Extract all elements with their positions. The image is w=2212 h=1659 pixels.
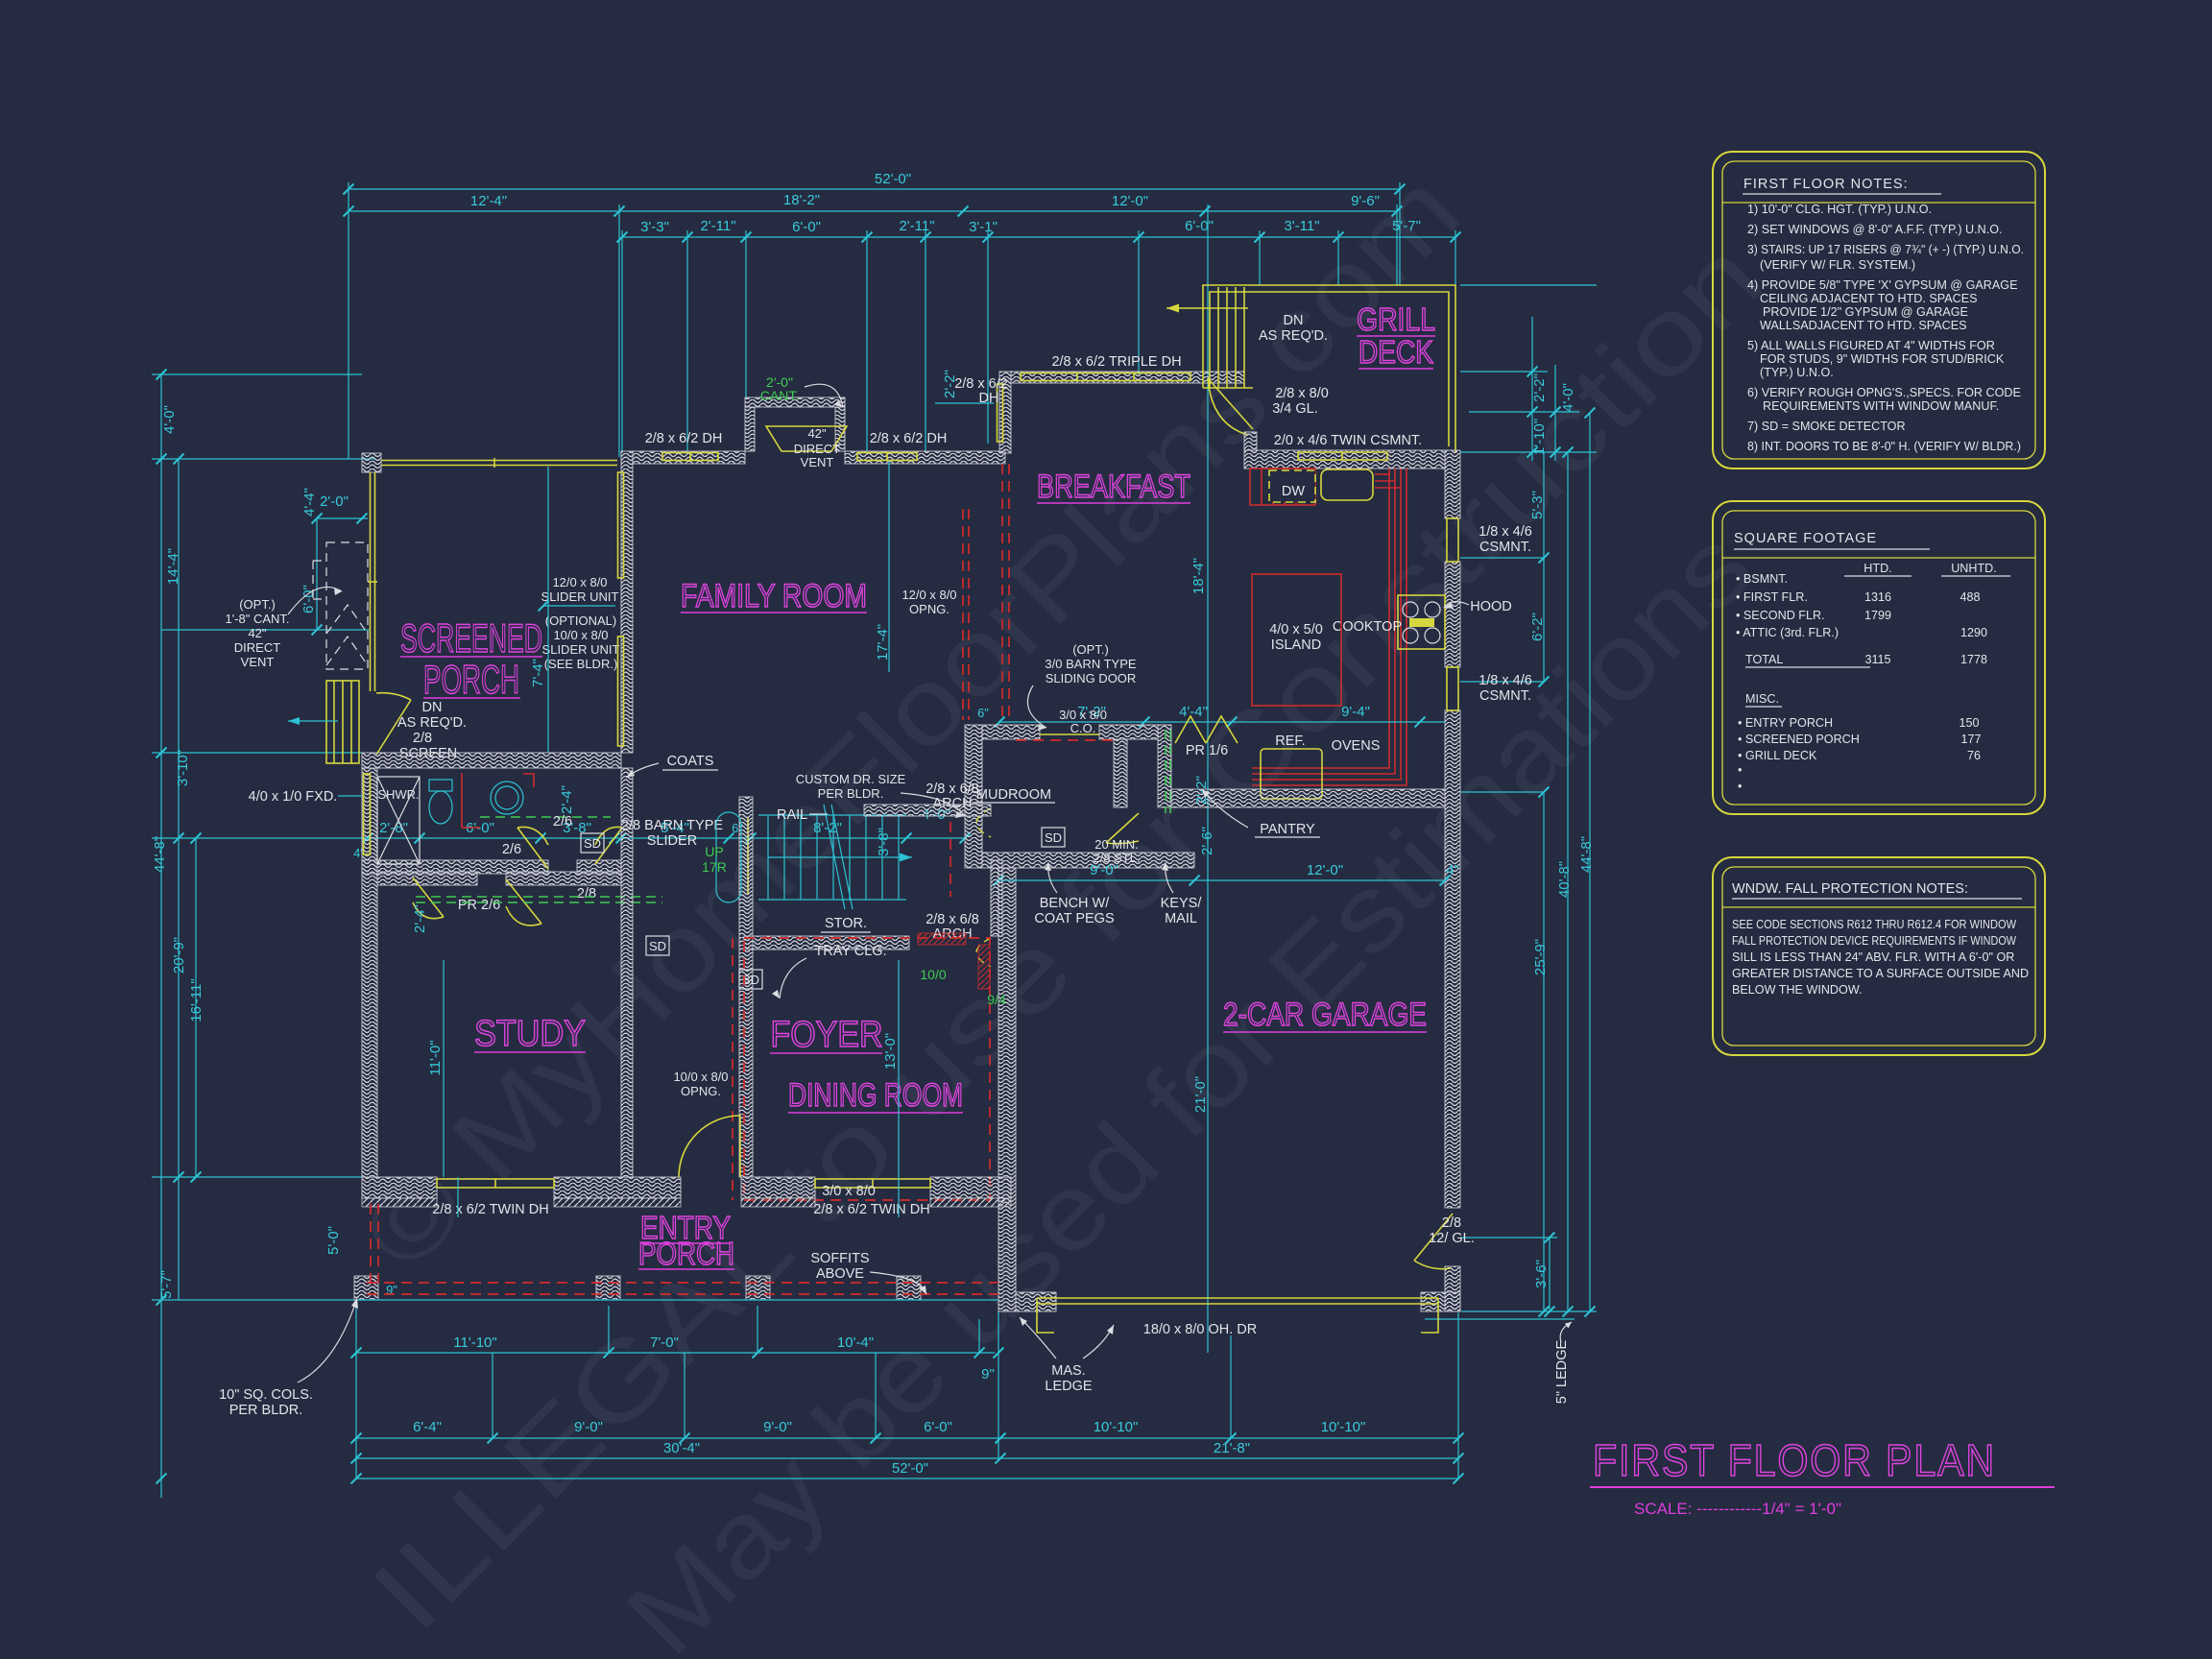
svg-text:2'-8": 2'-8" [379, 820, 408, 836]
svg-text:1/8 x 4/6: 1/8 x 4/6 [1479, 524, 1532, 540]
svg-text:VENT: VENT [801, 455, 834, 469]
svg-text:UP: UP [705, 844, 723, 859]
svg-text:• BSMNT.: • BSMNT. [1736, 572, 1788, 586]
svg-text:2/8 x 6/2: 2/8 x 6/2 [954, 376, 1008, 392]
svg-text:44'-8": 44'-8" [1578, 836, 1595, 873]
svg-text:25'-9": 25'-9" [1532, 939, 1549, 975]
svg-text:DECK: DECK [1358, 334, 1433, 370]
svg-text:PR 1/6: PR 1/6 [1186, 743, 1228, 758]
svg-text:DIRECT: DIRECT [234, 640, 280, 655]
svg-text:3/0 BARN TYPE: 3/0 BARN TYPE [1045, 657, 1136, 671]
svg-text:6": 6" [977, 706, 989, 720]
svg-text:FAMILY ROOM: FAMILY ROOM [681, 578, 867, 614]
svg-text:MUDROOM: MUDROOM [976, 787, 1051, 803]
svg-text:DIRECT: DIRECT [794, 442, 840, 456]
svg-text:• FIRST FLR.: • FIRST FLR. [1736, 590, 1808, 604]
svg-text:SLIDER: SLIDER [647, 833, 697, 849]
svg-text:FALL PROTECTION DEVICE REQUIRE: FALL PROTECTION DEVICE REQUIREMENTS IF W… [1732, 934, 2016, 948]
svg-text:13'-0": 13'-0" [882, 1033, 899, 1070]
svg-text:FOYER: FOYER [771, 1015, 883, 1055]
svg-text:5) ALL WALLS FIGURED AT 4" WID: 5) ALL WALLS FIGURED AT 4" WIDTHS FOR [1747, 339, 1995, 352]
svg-text:CUSTOM DR. SIZE: CUSTOM DR. SIZE [796, 772, 906, 786]
svg-text:16'-11": 16'-11" [188, 978, 204, 1022]
svg-text:2/6: 2/6 [553, 814, 572, 829]
svg-text:4/0 x 5/0: 4/0 x 5/0 [1269, 622, 1323, 637]
svg-text:REF.: REF. [1275, 733, 1305, 749]
svg-text:SLIDER UNIT: SLIDER UNIT [541, 589, 619, 604]
svg-text:11'-10": 11'-10" [453, 1334, 496, 1351]
svg-text:COAT PEGS: COAT PEGS [1034, 911, 1114, 926]
svg-text:SHWR.: SHWR. [377, 787, 419, 802]
svg-text:BENCH W/: BENCH W/ [1040, 896, 1110, 911]
svg-text:AS REQ'D.: AS REQ'D. [397, 715, 467, 731]
svg-text:8) INT. DOORS TO BE 8'-0" H. (: 8) INT. DOORS TO BE 8'-0" H. (VERIFY W/ … [1747, 440, 2021, 453]
svg-text:12'-0": 12'-0" [1307, 862, 1343, 878]
svg-text:2/8 x 6/8: 2/8 x 6/8 [926, 912, 979, 927]
svg-text:• GRILL DECK: • GRILL DECK [1738, 749, 1817, 762]
svg-text:4'-0": 4'-0" [161, 405, 178, 434]
svg-text:PROVIDE 1/2" GYPSUM @ GARAGE: PROVIDE 1/2" GYPSUM @ GARAGE [1763, 305, 1968, 319]
svg-text:SEE CODE SECTIONS R612 THRU R6: SEE CODE SECTIONS R612 THRU R612.4 FOR W… [1732, 918, 2016, 931]
svg-text:1/8 x 4/6: 1/8 x 4/6 [1479, 673, 1532, 688]
svg-text:4'-0": 4'-0" [1560, 383, 1576, 412]
svg-text:11'-0": 11'-0" [427, 1040, 444, 1075]
svg-text:6'-0": 6'-0" [1185, 218, 1214, 234]
svg-text:PANTRY: PANTRY [1260, 822, 1315, 837]
svg-text:SD: SD [584, 836, 601, 851]
svg-text:SD: SD [649, 939, 666, 953]
svg-text:488: 488 [1960, 590, 1980, 604]
svg-text:1'-10": 1'-10" [1531, 419, 1548, 455]
svg-text:9": 9" [981, 1366, 995, 1382]
svg-text:4": 4" [1446, 862, 1459, 878]
svg-text:BELOW THE WINDOW.: BELOW THE WINDOW. [1732, 983, 1863, 997]
svg-text:4) PROVIDE 5/8" TYPE 'X' GYPSU: 4) PROVIDE 5/8" TYPE 'X' GYPSUM @ GARAGE [1747, 278, 2017, 292]
svg-text:2/0 x 4/6 TWIN CSMNT.: 2/0 x 4/6 TWIN CSMNT. [1274, 433, 1422, 448]
svg-text:• SCREENED PORCH: • SCREENED PORCH [1738, 733, 1860, 746]
svg-text:12'-0": 12'-0" [1112, 193, 1148, 209]
svg-text:9'-6": 9'-6" [1351, 193, 1380, 209]
svg-text:•: • [1738, 780, 1742, 793]
svg-text:FOR STUDS, 9" WIDTHS FOR STUD/: FOR STUDS, 9" WIDTHS FOR STUD/BRICK [1760, 352, 2005, 366]
svg-text:DINING ROOM: DINING ROOM [788, 1077, 963, 1114]
svg-text:3/0 x 8/0: 3/0 x 8/0 [822, 1184, 876, 1199]
svg-text:5'-3": 5'-3" [1529, 491, 1546, 519]
svg-text:• ATTIC (3rd. FLR.): • ATTIC (3rd. FLR.) [1736, 626, 1839, 639]
svg-text:PORCH: PORCH [638, 1236, 734, 1271]
svg-text:2/8 BARN TYPE: 2/8 BARN TYPE [621, 818, 723, 833]
svg-text:1290: 1290 [1960, 626, 1987, 639]
svg-text:7'-4": 7'-4" [530, 659, 546, 687]
svg-text:MISC.: MISC. [1745, 692, 1779, 706]
svg-text:(VERIFY W/ FLR. SYSTEM.): (VERIFY W/ FLR. SYSTEM.) [1760, 258, 1915, 272]
svg-text:12/0 x 8/0: 12/0 x 8/0 [552, 575, 607, 589]
svg-text:SILL IS LESS THAN 24" ABV. FLR: SILL IS LESS THAN 24" ABV. FLR. WITH A 6… [1732, 950, 2014, 964]
svg-text:OPNG.: OPNG. [909, 602, 950, 616]
svg-text:ISLAND: ISLAND [1271, 637, 1321, 653]
svg-text:SQUARE FOOTAGE: SQUARE FOOTAGE [1734, 531, 1877, 546]
svg-text:KEYS/: KEYS/ [1161, 896, 1203, 911]
svg-text:ABOVE: ABOVE [816, 1266, 864, 1282]
svg-text:2'-11": 2'-11" [700, 218, 735, 234]
svg-text:2-CAR GARAGE: 2-CAR GARAGE [1223, 997, 1427, 1033]
svg-text:10/0 x 8/0: 10/0 x 8/0 [553, 628, 608, 642]
svg-text:9'-4": 9'-4" [1341, 704, 1370, 720]
svg-text:RAIL: RAIL [777, 807, 807, 823]
svg-text:2/8 x 6/2 TWIN DH: 2/8 x 6/2 TWIN DH [432, 1202, 548, 1217]
svg-text:CANT.: CANT. [760, 388, 799, 403]
svg-text:10'-10": 10'-10" [1094, 1419, 1139, 1435]
svg-text:7'-0": 7'-0" [650, 1334, 679, 1351]
svg-text:CEILING ADJACENT TO HTD. SPACE: CEILING ADJACENT TO HTD. SPACES [1760, 292, 1978, 305]
svg-text:21'-8": 21'-8" [1214, 1440, 1250, 1456]
svg-text:3'-6": 3'-6" [1533, 1260, 1550, 1288]
svg-text:9'-0": 9'-0" [763, 1419, 792, 1435]
svg-text:17R: 17R [702, 859, 727, 875]
svg-text:1799: 1799 [1864, 609, 1891, 622]
svg-text:• SECOND FLR.: • SECOND FLR. [1736, 609, 1825, 622]
svg-text:4/0 x 1/0 FXD.: 4/0 x 1/0 FXD. [249, 789, 338, 805]
svg-text:•: • [1738, 763, 1742, 777]
svg-text:REQUIREMENTS WITH WINDOW MANUF: REQUIREMENTS WITH WINDOW MANUF. [1763, 399, 1999, 413]
svg-text:CSMNT.: CSMNT. [1479, 688, 1531, 704]
svg-text:9'-0": 9'-0" [1090, 862, 1118, 878]
svg-text:20 MIN.: 20 MIN. [1094, 837, 1139, 852]
svg-text:(SEE BLDR.): (SEE BLDR.) [544, 657, 618, 671]
svg-text:3) STAIRS: UP 17 RISERS @ 7¾": 3) STAIRS: UP 17 RISERS @ 7¾" (+ -) (TYP… [1747, 243, 2024, 256]
svg-text:HOOD: HOOD [1470, 599, 1512, 614]
svg-text:STUDY: STUDY [474, 1014, 586, 1054]
svg-text:PORCH: PORCH [423, 657, 519, 702]
svg-text:30'-4": 30'-4" [663, 1440, 700, 1456]
svg-text:PER BLDR.: PER BLDR. [229, 1403, 303, 1418]
svg-text:1778: 1778 [1960, 653, 1987, 666]
svg-text:14'-4": 14'-4" [165, 548, 181, 585]
svg-text:2'-2": 2'-2" [1193, 776, 1210, 805]
svg-text:40'-8": 40'-8" [1556, 861, 1573, 898]
svg-text:SLIDER UNIT: SLIDER UNIT [542, 642, 620, 657]
svg-text:GRILL: GRILL [1357, 301, 1435, 337]
svg-text:PER BLDR.: PER BLDR. [818, 786, 884, 801]
svg-text:TOTAL: TOTAL [1745, 653, 1783, 666]
svg-text:4'-4": 4'-4" [301, 488, 318, 517]
svg-text:2'-11": 2'-11" [899, 218, 934, 234]
svg-text:TRAY CLG.: TRAY CLG. [814, 944, 886, 959]
svg-text:MAS.: MAS. [1051, 1363, 1085, 1379]
svg-text:STOR.: STOR. [825, 916, 867, 931]
svg-text:2) SET WINDOWS @ 8'-0" A.F.F.: 2) SET WINDOWS @ 8'-0" A.F.F. (TYP.) U.N… [1747, 223, 2003, 236]
svg-text:2/8: 2/8 [577, 886, 596, 902]
svg-text:5'-0": 5'-0" [325, 1226, 342, 1255]
svg-text:2/8 x 6/2 DH: 2/8 x 6/2 DH [870, 431, 948, 446]
svg-text:(OPT.): (OPT.) [239, 597, 276, 612]
svg-text:2/8 x 6/8: 2/8 x 6/8 [926, 781, 979, 797]
svg-text:9'-0": 9'-0" [574, 1419, 603, 1435]
svg-text:LEDGE: LEDGE [1045, 1379, 1092, 1394]
svg-text:SLIDING DOOR: SLIDING DOOR [1046, 671, 1137, 685]
svg-text:17'-4": 17'-4" [875, 624, 891, 661]
svg-text:6'-0": 6'-0" [792, 219, 821, 235]
svg-text:AS REQ'D.: AS REQ'D. [1259, 328, 1328, 344]
svg-text:42": 42" [807, 426, 826, 441]
svg-text:1316: 1316 [1864, 590, 1891, 604]
svg-text:DN: DN [1284, 313, 1304, 328]
svg-text:10" SQ. COLS.: 10" SQ. COLS. [219, 1387, 313, 1403]
svg-text:1'-8" CANT.: 1'-8" CANT. [225, 612, 289, 626]
svg-text:150: 150 [1959, 716, 1979, 730]
svg-text:20'-9": 20'-9" [171, 937, 187, 974]
svg-text:52'-0": 52'-0" [892, 1460, 928, 1477]
svg-text:10/0: 10/0 [920, 967, 946, 982]
svg-text:12/0 x 8/0: 12/0 x 8/0 [902, 588, 956, 602]
svg-text:3'-11": 3'-11" [1284, 218, 1319, 234]
svg-text:5" LEDGE: 5" LEDGE [1554, 1339, 1570, 1404]
svg-text:21'-0": 21'-0" [1192, 1076, 1209, 1113]
svg-text:6'-2": 6'-2" [1529, 613, 1546, 641]
svg-text:3/4 GL.: 3/4 GL. [1272, 401, 1318, 417]
svg-text:2/8 x 6/2 TRIPLE DH: 2/8 x 6/2 TRIPLE DH [1051, 354, 1181, 370]
svg-text:OVENS: OVENS [1332, 738, 1381, 754]
svg-text:177: 177 [1960, 733, 1981, 746]
svg-text:10'-10": 10'-10" [1321, 1419, 1366, 1435]
svg-text:2/8 x 6/2 DH: 2/8 x 6/2 DH [645, 431, 723, 446]
svg-text:52'-0": 52'-0" [875, 171, 911, 187]
svg-text:(OPTIONAL): (OPTIONAL) [545, 613, 616, 628]
svg-text:3'-1": 3'-1" [969, 219, 998, 235]
svg-text:5'-7": 5'-7" [158, 1270, 175, 1299]
svg-text:10'-4": 10'-4" [837, 1334, 874, 1351]
svg-text:2'-0": 2'-0" [320, 493, 349, 510]
svg-text:12'-4": 12'-4" [470, 193, 507, 209]
svg-text:SOFFITS: SOFFITS [810, 1251, 869, 1266]
svg-text:18'-2": 18'-2" [783, 192, 820, 208]
svg-text:3/0 x 8/0: 3/0 x 8/0 [1059, 708, 1107, 722]
svg-text:2'-4": 2'-4" [559, 785, 575, 814]
svg-text:WNDW. FALL PROTECTION NOTES:: WNDW. FALL PROTECTION NOTES: [1732, 881, 1968, 897]
svg-text:2/8: 2/8 [1442, 1215, 1461, 1231]
svg-text:3'-8": 3'-8" [876, 828, 892, 856]
svg-text:2'-2": 2'-2" [1531, 373, 1548, 402]
svg-text:44'-8": 44'-8" [152, 836, 168, 873]
svg-text:3115: 3115 [1864, 653, 1890, 666]
svg-text:FIRST FLOOR NOTES:: FIRST FLOOR NOTES: [1743, 177, 1909, 192]
svg-text:COOKTOP: COOKTOP [1333, 619, 1402, 635]
svg-text:18/0 x 8/0 OH. DR: 18/0 x 8/0 OH. DR [1143, 1322, 1257, 1337]
svg-text:2/6: 2/6 [502, 842, 521, 857]
svg-text:1) 10'-0" CLG. HGT. (TYP.) U.: 1) 10'-0" CLG. HGT. (TYP.) U.N.O. [1747, 203, 1932, 216]
svg-text:4'-4": 4'-4" [1179, 704, 1208, 720]
svg-text:VENT: VENT [241, 655, 275, 669]
svg-text:6'-4": 6'-4" [413, 1419, 442, 1435]
svg-text:6'-0": 6'-0" [924, 1419, 952, 1435]
svg-text:UNHTD.: UNHTD. [1951, 562, 1997, 575]
svg-text:MAIL: MAIL [1165, 911, 1197, 926]
svg-text:COATS: COATS [667, 754, 714, 769]
svg-text:SD: SD [1045, 830, 1062, 845]
svg-text:C.O.: C.O. [1070, 721, 1096, 735]
svg-text:PR 2/6: PR 2/6 [458, 898, 500, 913]
svg-text:SCALE: ------------1/4" = 1'-0: SCALE: ------------1/4" = 1'-0" [1634, 1500, 1841, 1518]
svg-text:CSMNT.: CSMNT. [1479, 540, 1531, 555]
svg-text:FIRST FLOOR PLAN: FIRST FLOOR PLAN [1593, 1435, 1996, 1485]
svg-text:• ENTRY PORCH: • ENTRY PORCH [1738, 716, 1833, 730]
svg-text:10/0 x 8/0: 10/0 x 8/0 [673, 1070, 728, 1084]
svg-text:3'-10": 3'-10" [175, 750, 191, 786]
svg-text:GREATER DISTANCE TO A SURFACE: GREATER DISTANCE TO A SURFACE OUTSIDE AN… [1732, 967, 2029, 980]
svg-text:HTD.: HTD. [1863, 562, 1891, 575]
svg-text:BREAKFAST: BREAKFAST [1037, 469, 1190, 505]
svg-text:(OPT.): (OPT.) [1072, 642, 1109, 657]
svg-text:18'-4": 18'-4" [1190, 558, 1207, 594]
svg-text:2/8 x 8/0: 2/8 x 8/0 [1275, 386, 1329, 401]
svg-text:SCREENED: SCREENED [400, 615, 542, 661]
svg-text:OPNG.: OPNG. [681, 1084, 721, 1098]
svg-text:DN: DN [422, 700, 443, 715]
svg-text:(TYP.) U.N.O.: (TYP.) U.N.O. [1760, 366, 1834, 379]
svg-text:2'-4": 2'-4" [412, 904, 428, 933]
svg-text:WALLSADJACENT TO HTD. SPACES: WALLSADJACENT TO HTD. SPACES [1760, 319, 1967, 332]
svg-text:2'-6": 2'-6" [1199, 827, 1215, 855]
svg-text:3'-3": 3'-3" [640, 219, 669, 235]
svg-text:DH: DH [979, 391, 999, 406]
svg-text:12/ GL.: 12/ GL. [1429, 1231, 1475, 1246]
svg-text:9/4: 9/4 [987, 992, 1006, 1007]
svg-text:42": 42" [248, 626, 266, 640]
svg-text:2/8 x 6/2 TWIN DH: 2/8 x 6/2 TWIN DH [813, 1202, 929, 1217]
svg-text:2/8: 2/8 [413, 731, 432, 746]
svg-text:6) VERIFY ROUGH OPNG'S.,SPECS.: 6) VERIFY ROUGH OPNG'S.,SPECS. FOR CODE [1747, 386, 2021, 399]
svg-text:DW: DW [1282, 484, 1305, 499]
svg-text:7) SD = SMOKE DETECTOR: 7) SD = SMOKE DETECTOR [1747, 420, 1906, 433]
svg-text:76: 76 [1967, 749, 1981, 762]
